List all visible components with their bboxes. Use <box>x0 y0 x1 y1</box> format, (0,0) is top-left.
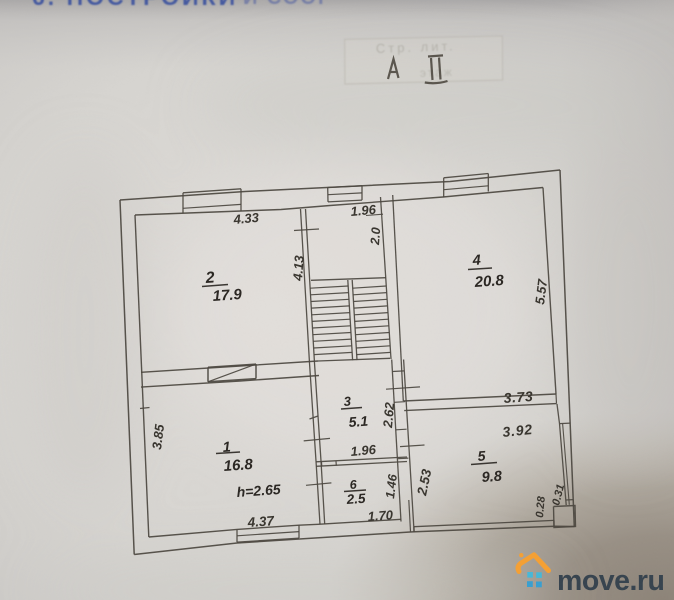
svg-text:И СООР: И СООР <box>243 0 333 9</box>
svg-text:2: 2 <box>204 269 215 287</box>
svg-text:h=2.65: h=2.65 <box>236 481 281 500</box>
svg-text:0.28: 0.28 <box>534 495 548 518</box>
svg-text:20.8: 20.8 <box>473 272 505 291</box>
svg-text:1.70: 1.70 <box>367 507 394 524</box>
svg-text:6. ПОСТРОЙКИ: 6. ПОСТРОЙКИ <box>32 0 238 10</box>
svg-text:3.85: 3.85 <box>149 423 167 451</box>
svg-text:3.73: 3.73 <box>503 388 534 406</box>
svg-text:4: 4 <box>471 252 481 269</box>
svg-text:2.0: 2.0 <box>368 227 383 246</box>
svg-text:4.37: 4.37 <box>246 513 276 530</box>
svg-text:4.33: 4.33 <box>232 210 260 227</box>
svg-text:4.13: 4.13 <box>290 254 307 282</box>
svg-text:move.ru: move.ru <box>557 565 664 597</box>
svg-text:5.1: 5.1 <box>348 413 369 430</box>
svg-text:3.92: 3.92 <box>502 421 534 440</box>
svg-text:16.8: 16.8 <box>223 456 254 475</box>
svg-text:2.62: 2.62 <box>380 401 397 429</box>
svg-text:этаж: этаж <box>420 65 454 80</box>
svg-text:5: 5 <box>477 447 486 464</box>
svg-text:1.96: 1.96 <box>350 442 377 459</box>
svg-text:2.5: 2.5 <box>345 491 366 507</box>
svg-text:Стр. лит.: Стр. лит. <box>376 38 456 56</box>
svg-text:1.96: 1.96 <box>350 202 377 219</box>
svg-text:9.8: 9.8 <box>481 469 503 486</box>
svg-text:17.9: 17.9 <box>212 286 243 305</box>
svg-text:5.57: 5.57 <box>532 278 550 306</box>
